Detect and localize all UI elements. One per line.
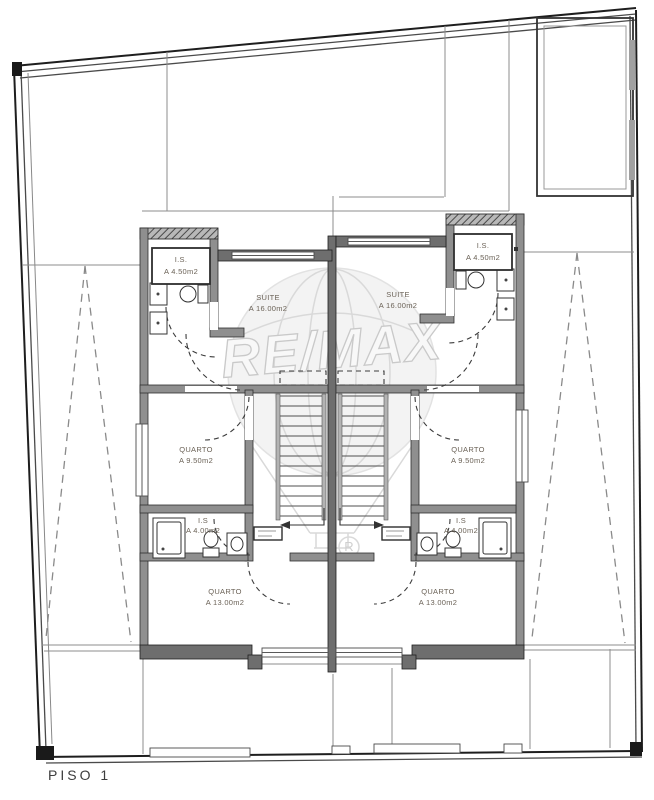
- toilet-icon: [468, 272, 484, 288]
- floor-label: PISO 1: [48, 767, 111, 783]
- label-marker: [514, 247, 518, 251]
- toilet-icon: [456, 271, 466, 289]
- party-wall: [328, 236, 336, 672]
- left-level-tag: [254, 527, 282, 540]
- registered-mark-letter: R: [344, 539, 353, 554]
- right-level-tag: [382, 527, 410, 540]
- corner-mark: [36, 746, 54, 760]
- floor-plan: R RE/MAX: [0, 0, 654, 800]
- corner-mark: [630, 742, 642, 756]
- toilet-icon: [198, 285, 208, 303]
- room-label-box: [152, 248, 210, 284]
- room-label-box: [454, 234, 512, 270]
- corner-mark: [12, 62, 22, 76]
- toilet-icon: [180, 286, 196, 302]
